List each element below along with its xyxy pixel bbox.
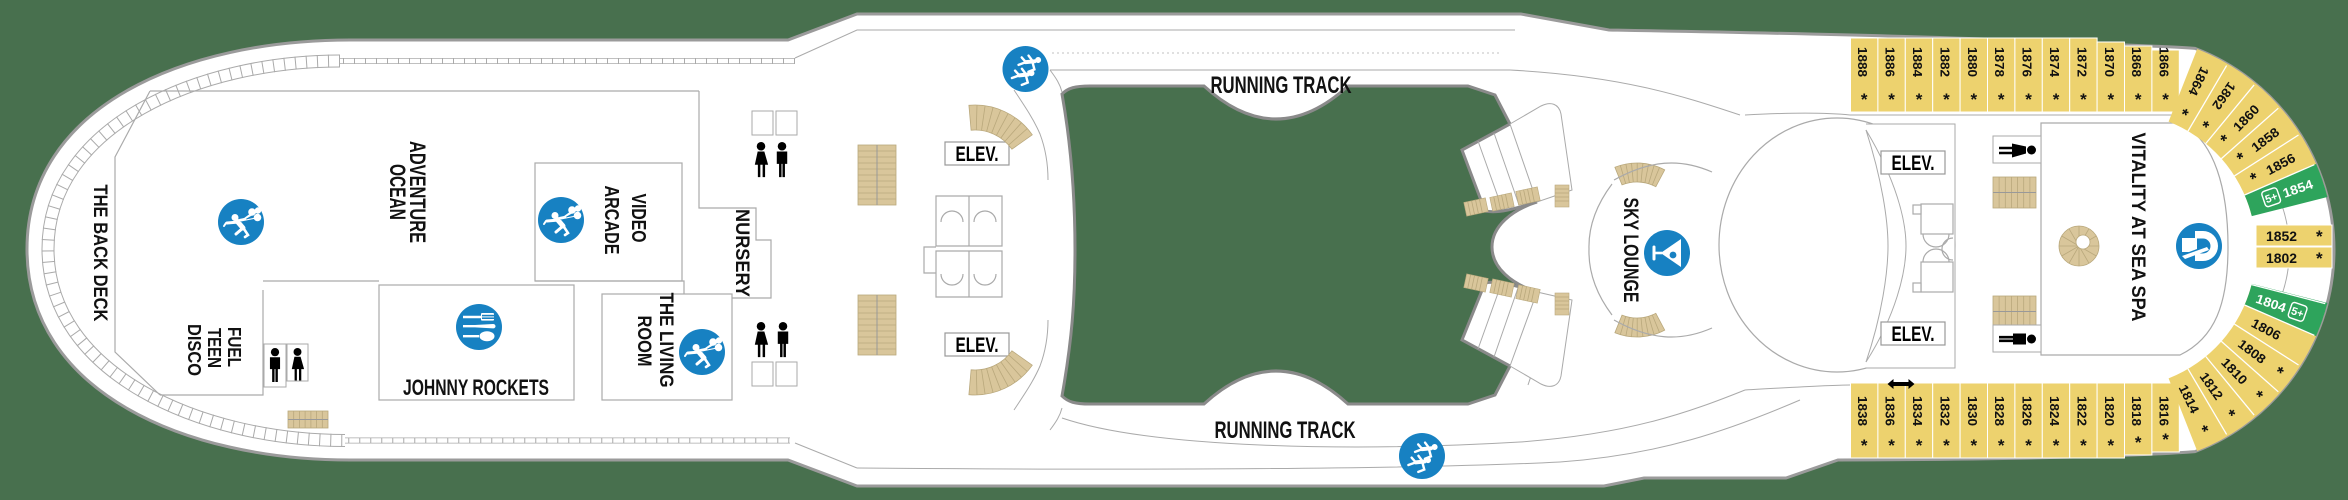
svg-text:1884: 1884 (1910, 47, 1925, 78)
svg-text:1836: 1836 (1883, 396, 1898, 426)
svg-text:*: * (2025, 90, 2032, 109)
svg-text:1882: 1882 (1937, 47, 1952, 77)
svg-text:1824: 1824 (2047, 396, 2062, 427)
svg-text:ELEV.: ELEV. (956, 334, 999, 357)
svg-text:ARCADE: ARCADE (600, 186, 622, 255)
svg-text:SKY LOUNGE: SKY LOUNGE (1619, 198, 1642, 303)
svg-text:*: * (1916, 436, 1923, 455)
svg-text:ELEV.: ELEV. (1892, 152, 1935, 175)
svg-text:*: * (2135, 90, 2142, 109)
svg-text:*: * (1861, 90, 1868, 109)
svg-text:*: * (2107, 90, 2114, 109)
svg-text:*: * (2053, 90, 2060, 109)
svg-text:1830: 1830 (1965, 396, 1980, 426)
svg-text:*: * (1998, 436, 2005, 455)
svg-text:*: * (2162, 430, 2169, 449)
svg-text:DISCO: DISCO (184, 324, 205, 376)
svg-text:1870: 1870 (2102, 47, 2117, 77)
svg-text:ELEV.: ELEV. (1892, 323, 1935, 346)
svg-text:THE LIVING: THE LIVING (655, 293, 676, 388)
svg-text:1802: 1802 (2266, 251, 2297, 266)
svg-text:*: * (2080, 436, 2087, 455)
svg-text:FUEL: FUEL (224, 327, 245, 367)
svg-text:*: * (1943, 436, 1950, 455)
svg-text:THE BACK DECK: THE BACK DECK (89, 185, 110, 322)
svg-text:1888: 1888 (1855, 47, 1870, 77)
svg-text:*: * (2025, 436, 2032, 455)
svg-text:1880: 1880 (1965, 47, 1980, 77)
svg-text:*: * (2316, 227, 2323, 246)
svg-text:1818: 1818 (2129, 396, 2144, 426)
svg-text:*: * (2053, 436, 2060, 455)
svg-text:*: * (1970, 90, 1977, 109)
svg-text:*: * (1998, 90, 2005, 109)
svg-text:*: * (2316, 249, 2323, 268)
svg-text:*: * (1861, 436, 1868, 455)
svg-text:1868: 1868 (2129, 47, 2144, 77)
svg-text:*: * (1943, 90, 1950, 109)
svg-text:RUNNING TRACK: RUNNING TRACK (1215, 417, 1356, 444)
svg-text:*: * (2080, 90, 2087, 109)
svg-text:RUNNING TRACK: RUNNING TRACK (1211, 72, 1352, 99)
svg-text:1876: 1876 (2020, 47, 2035, 77)
svg-text:*: * (1970, 436, 1977, 455)
svg-text:1820: 1820 (2102, 396, 2117, 426)
svg-text:VIDEO: VIDEO (627, 194, 649, 243)
svg-text:1822: 1822 (2074, 396, 2089, 426)
svg-text:NURSERY: NURSERY (731, 209, 752, 297)
svg-text:1828: 1828 (1992, 396, 2007, 426)
svg-text:*: * (2135, 433, 2142, 452)
svg-text:1866: 1866 (2157, 47, 2172, 77)
svg-text:1878: 1878 (1992, 47, 2007, 77)
svg-text:1838: 1838 (1855, 396, 1870, 426)
svg-text:ROOM: ROOM (633, 316, 654, 367)
svg-text:1816: 1816 (2157, 396, 2172, 426)
svg-text:TEEN: TEEN (204, 328, 225, 368)
svg-text:OCEAN: OCEAN (385, 164, 410, 220)
svg-text:1886: 1886 (1883, 47, 1898, 77)
svg-text:*: * (1916, 90, 1923, 109)
svg-text:*: * (2162, 90, 2169, 109)
svg-text:JOHNNY ROCKETS: JOHNNY ROCKETS (403, 375, 549, 400)
svg-text:1826: 1826 (2020, 396, 2035, 426)
svg-text:ELEV.: ELEV. (956, 143, 999, 166)
svg-text:1852: 1852 (2266, 229, 2297, 244)
svg-text:VITALITY AT SEA SPA: VITALITY AT SEA SPA (2127, 133, 2149, 322)
svg-text:1872: 1872 (2074, 47, 2089, 77)
svg-text:1834: 1834 (1910, 396, 1925, 427)
svg-text:*: * (2107, 436, 2114, 455)
svg-text:*: * (1888, 90, 1895, 109)
svg-text:*: * (1888, 436, 1895, 455)
svg-text:1832: 1832 (1937, 396, 1952, 426)
svg-text:1874: 1874 (2047, 47, 2062, 78)
